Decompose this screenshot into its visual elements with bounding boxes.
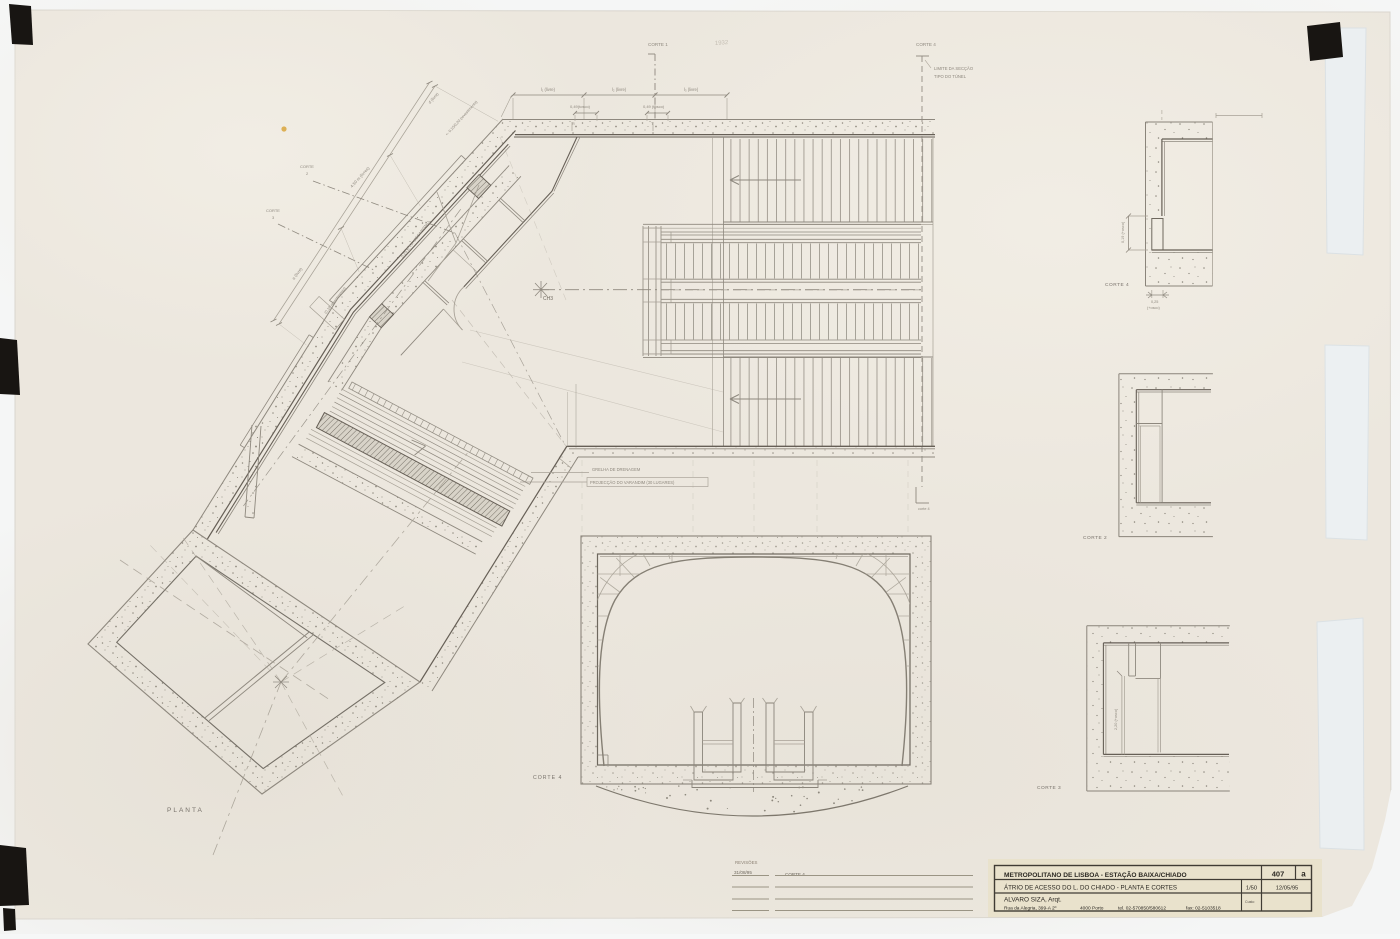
svg-text:CORTE 3: CORTE 3 (1037, 785, 1061, 791)
svg-text:CORTE 1: CORTE 1 (648, 42, 668, 47)
svg-text:GRELHA DE DRENAGEM: GRELHA DE DRENAGEM (592, 467, 641, 472)
svg-text:CH3: CH3 (543, 296, 553, 302)
svg-text:0,25: 0,25 (1151, 300, 1158, 304)
svg-text:12/05/95: 12/05/95 (1276, 886, 1299, 892)
svg-text:CORTE 4: CORTE 4 (916, 42, 936, 47)
svg-text:ALVARO SIZA, Arqt.: ALVARO SIZA, Arqt. (1004, 897, 1062, 904)
svg-text:Custo: Custo (1245, 900, 1254, 904)
svg-text:31/08/95: 31/08/95 (734, 870, 752, 875)
svg-text:l₃ (livre): l₃ (livre) (684, 87, 699, 92)
svg-text:(+osco): (+osco) (1147, 306, 1161, 310)
svg-text:a: a (1301, 870, 1306, 879)
svg-text:l₂ (livre): l₂ (livre) (612, 87, 627, 92)
svg-text:4000 Porto: 4000 Porto (1080, 906, 1104, 912)
svg-text:CORTE 4: CORTE 4 (533, 775, 562, 781)
svg-text:CORTE: CORTE (266, 208, 280, 213)
svg-text:corte 4: corte 4 (918, 507, 930, 511)
svg-text:CORTE 2: CORTE 2 (1083, 535, 1107, 541)
svg-text:fax: 02-5103518: fax: 02-5103518 (1186, 906, 1221, 912)
svg-text:1932: 1932 (715, 40, 729, 47)
svg-text:0,19 (+osco): 0,19 (+osco) (1121, 221, 1125, 243)
svg-text:ÁTRIO DE ACESSO DO L. DO CHIAD: ÁTRIO DE ACESSO DO L. DO CHIADO - PLANTA… (1004, 885, 1177, 892)
svg-text:l₁ (livre): l₁ (livre) (541, 87, 556, 92)
svg-text:PLANTA: PLANTA (167, 807, 204, 814)
svg-text:METROPOLITANO DE LISBOA - ESTA: METROPOLITANO DE LISBOA - ESTAÇÃO BAIXA/… (1004, 870, 1187, 879)
svg-text:CORTE 4: CORTE 4 (785, 872, 805, 877)
svg-text:REVISÕES: REVISÕES (735, 860, 758, 865)
svg-text:LIMITE DA SECÇÃO: LIMITE DA SECÇÃO (934, 66, 974, 71)
svg-text:0,49 (tosco): 0,49 (tosco) (643, 104, 665, 109)
svg-text:R: R (572, 122, 575, 126)
svg-text:0,49(tosco): 0,49(tosco) (570, 104, 591, 109)
svg-text:tel. 02-570850/580612: tel. 02-570850/580612 (1118, 906, 1166, 912)
svg-text:2,20 (+osco): 2,20 (+osco) (1114, 708, 1118, 730)
svg-text:Rua da Alegria, 399-A 2º: Rua da Alegria, 399-A 2º (1004, 906, 1057, 912)
svg-text:CORTE: CORTE (300, 164, 314, 169)
svg-text:CORTE 4: CORTE 4 (1105, 282, 1129, 288)
svg-text:PROJECÇÃO DO VARANDIM (30 LU: PROJECÇÃO DO VARANDIM (30 LUGARES) (590, 480, 675, 485)
svg-text:1/50: 1/50 (1246, 886, 1257, 892)
svg-text:TIPO DO TÚNEL: TIPO DO TÚNEL (934, 74, 967, 79)
svg-text:407: 407 (1272, 870, 1285, 879)
